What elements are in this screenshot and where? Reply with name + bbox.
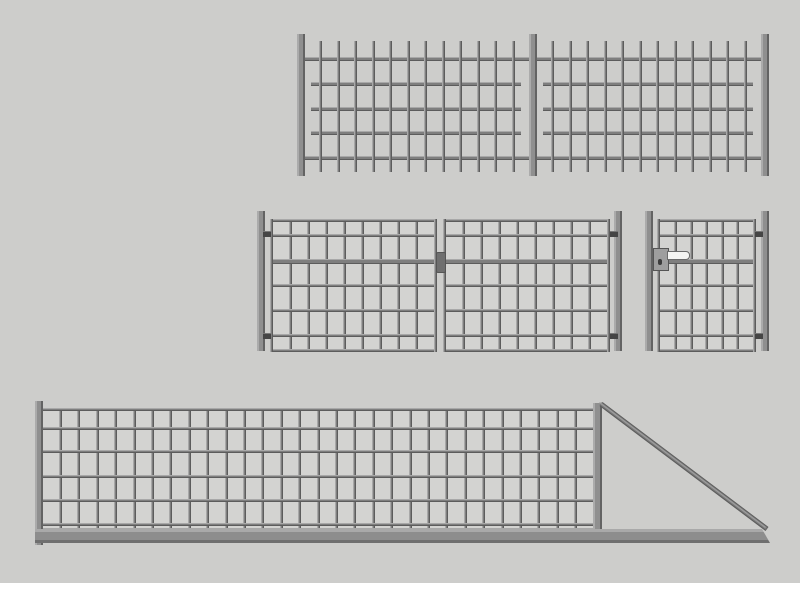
single-gate-leaf-frame-left [657, 219, 660, 352]
fence-bar [459, 41, 462, 172]
double-gate-leaf-2-mesh-wire-horizontal [443, 234, 610, 237]
sliding-gate-leaf-mesh-wire-horizontal [39, 475, 597, 478]
fence-bar [604, 41, 607, 172]
double-gate-leaf-1-mesh-wire-horizontal [270, 284, 437, 287]
double-gate-leaf-1-mesh-wire-horizontal [270, 234, 437, 237]
single-gate-leaf-mesh-wire-horizontal [657, 309, 756, 312]
fence-bar [354, 41, 357, 172]
single-gate-leaf-frame-bottom [657, 349, 756, 352]
fence-bar [656, 41, 659, 172]
sliding-gate-upright [35, 401, 43, 545]
fence-rail [543, 82, 753, 86]
single-gate-leaf-mesh-wire-horizontal [657, 334, 756, 337]
hinge-icon [263, 231, 271, 237]
sliding-gate-upright [593, 403, 602, 531]
sliding-gate-bottom-beam [35, 529, 770, 543]
sliding-gate-leaf-mesh-wire-horizontal [39, 523, 597, 526]
sliding-gate-leaf-mesh-wire-horizontal [39, 450, 597, 453]
sliding-gate-leaf-mesh-wire-horizontal [39, 499, 597, 502]
double-gate-leaf-1-mesh-wire-horizontal [270, 259, 437, 264]
fence-bar [639, 41, 642, 172]
hinge-icon [610, 333, 618, 339]
fence-rail [311, 131, 521, 135]
fence-bar [337, 41, 340, 172]
fence-bar [319, 41, 322, 172]
double-gate-leaf-1-frame-top [270, 219, 437, 222]
fence-bar [586, 41, 589, 172]
hinge-icon [755, 333, 763, 339]
double-gate-leaf-1-mesh-wire-horizontal [270, 309, 437, 312]
hinge-icon [263, 333, 271, 339]
fence-bar [477, 41, 480, 172]
gate-handle-icon [667, 251, 690, 260]
fence-bar [442, 41, 445, 172]
fence-bar [424, 41, 427, 172]
double-gate-leaf-2-mesh-wire-horizontal [443, 334, 610, 337]
fence-bar [512, 41, 515, 172]
double-gate-leaf-1-frame-bottom [270, 349, 437, 352]
fence-post [761, 34, 769, 176]
gate-lock-keyhole-icon [658, 259, 662, 265]
single-gate-leaf-mesh-wire-horizontal [657, 284, 756, 287]
fence-bar [551, 41, 554, 172]
fence-rail [311, 82, 521, 86]
double-gate-leaf-1-mesh-wire-horizontal [270, 334, 437, 337]
double-gate-leaf-2-mesh-wire-horizontal [443, 284, 610, 287]
double-gate-leaf-2-mesh-wire-horizontal [443, 259, 610, 264]
double-gate-leaf-2-frame-bottom [443, 349, 610, 352]
single-gate-leaf-frame-top [657, 219, 756, 222]
fence-bar [621, 41, 624, 172]
single-gate-leaf-mesh-wire-horizontal [657, 234, 756, 237]
fence-post [297, 34, 305, 176]
fence-rail [543, 131, 753, 135]
fence-bar [691, 41, 694, 172]
double-gate-latch [436, 252, 446, 273]
sliding-gate-leaf-mesh-wire-horizontal [39, 427, 597, 430]
fence-bar [407, 41, 410, 172]
fence-post [529, 34, 537, 176]
double-gate-leaf-1-frame-right [434, 219, 437, 352]
double-gate-leaf-2-frame-top [443, 219, 610, 222]
single-gate-post [645, 211, 653, 351]
fence-bar [372, 41, 375, 172]
fence-bar [709, 41, 712, 172]
canvas-bottom-margin [0, 583, 800, 600]
fence-bar [569, 41, 572, 172]
drawing-canvas [0, 0, 800, 600]
fence-bar [674, 41, 677, 172]
sliding-gate-diagonal-brace [600, 403, 766, 528]
fence-rail [311, 107, 521, 111]
hinge-icon [610, 231, 618, 237]
fence-bar [726, 41, 729, 172]
hinge-icon [755, 231, 763, 237]
double-gate-leaf-2-mesh-wire-horizontal [443, 309, 610, 312]
sliding-gate-leaf-frame-top [39, 408, 597, 411]
fence-bar [494, 41, 497, 172]
fence-rail [543, 107, 753, 111]
fence-bar [389, 41, 392, 172]
fence-bar [744, 41, 747, 172]
double-gate-leaf-2-frame-left [443, 219, 446, 352]
sliding-gate-diagonal-brace [601, 404, 767, 529]
sliding-gate-diagonal-brace [601, 404, 767, 529]
